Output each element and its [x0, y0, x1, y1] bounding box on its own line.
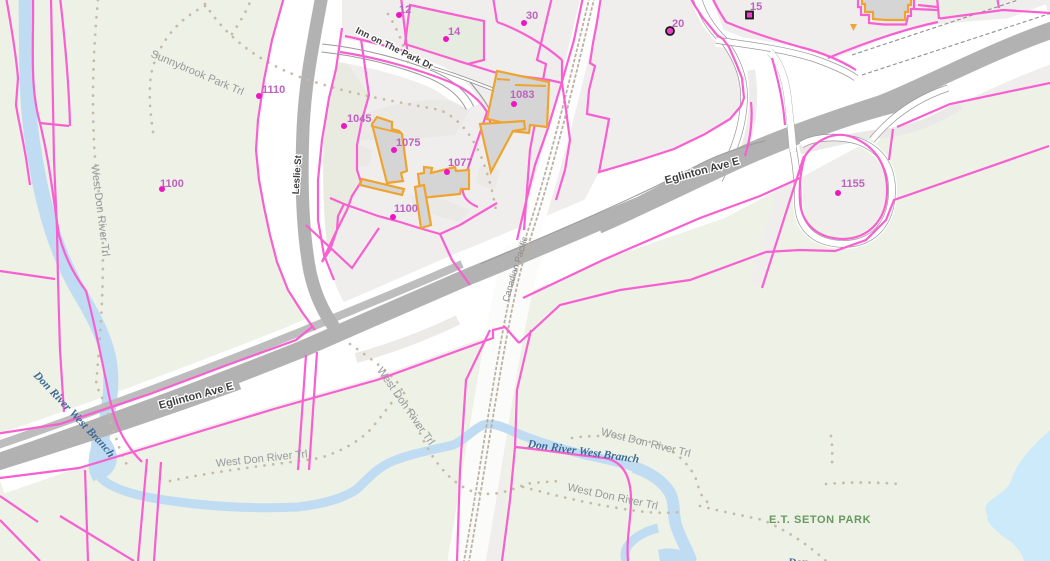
svg-text:1083: 1083 — [510, 89, 534, 101]
svg-text:1110: 1110 — [262, 84, 285, 96]
svg-text:1155: 1155 — [841, 178, 865, 190]
svg-text:12: 12 — [399, 4, 411, 16]
svg-text:30: 30 — [526, 10, 538, 22]
svg-text:14: 14 — [448, 26, 461, 38]
svg-text:Don: Don — [787, 557, 808, 561]
svg-text:20: 20 — [672, 18, 684, 30]
svg-text:1100: 1100 — [160, 178, 184, 190]
svg-text:1100: 1100 — [394, 203, 418, 215]
svg-text:1075: 1075 — [396, 137, 420, 149]
svg-text:1077: 1077 — [448, 157, 472, 169]
svg-text:E.T. SETON PARK: E.T. SETON PARK — [769, 514, 871, 526]
svg-text:15: 15 — [750, 1, 762, 13]
svg-text:1045: 1045 — [347, 113, 371, 125]
